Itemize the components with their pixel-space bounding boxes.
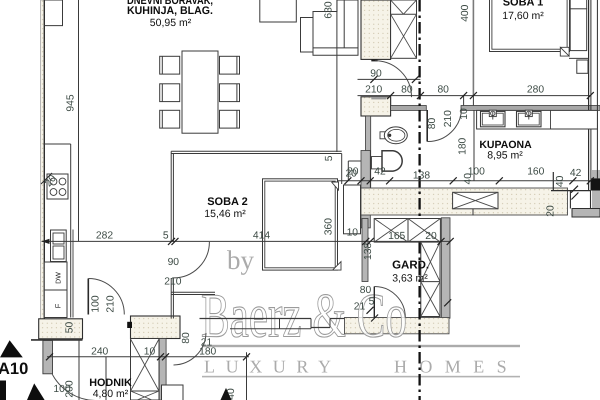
- svg-text:210: 210: [443, 110, 454, 127]
- svg-text:414: 414: [253, 230, 270, 241]
- svg-text:90: 90: [168, 257, 180, 268]
- svg-text:10: 10: [144, 347, 156, 358]
- svg-text:15,46 m²: 15,46 m²: [204, 208, 246, 220]
- svg-text:138: 138: [413, 171, 430, 182]
- svg-text:80: 80: [437, 85, 449, 96]
- svg-text:SOBA 2: SOBA 2: [207, 196, 248, 208]
- svg-text:5: 5: [369, 297, 375, 308]
- svg-text:LUXURY: LUXURY: [204, 357, 342, 377]
- svg-text:210: 210: [365, 85, 382, 96]
- svg-text:210: 210: [164, 276, 181, 287]
- svg-text:by: by: [227, 245, 255, 275]
- svg-text:8,95 m²: 8,95 m²: [487, 150, 523, 162]
- svg-text:50: 50: [65, 322, 76, 334]
- svg-text:945: 945: [66, 94, 77, 111]
- svg-text:3,63 m²: 3,63 m²: [392, 272, 428, 284]
- svg-text:HODNIK: HODNIK: [89, 377, 132, 389]
- svg-text:DW: DW: [56, 272, 63, 284]
- svg-text:F: F: [54, 303, 63, 308]
- svg-text:HOMES: HOMES: [394, 357, 519, 377]
- svg-text:40: 40: [555, 175, 566, 187]
- svg-text:80: 80: [181, 332, 192, 344]
- svg-text:282: 282: [96, 231, 113, 242]
- svg-text:10: 10: [459, 108, 470, 120]
- svg-text:42: 42: [374, 167, 386, 178]
- svg-text:630: 630: [324, 1, 335, 18]
- svg-text:20: 20: [425, 231, 437, 242]
- svg-text:40: 40: [463, 173, 474, 185]
- svg-text:180: 180: [199, 347, 216, 358]
- svg-text:4,80 m²: 4,80 m²: [93, 388, 129, 400]
- svg-text:180: 180: [458, 137, 469, 154]
- svg-text:Baerz & Co: Baerz & Co: [201, 281, 407, 351]
- svg-text:280: 280: [527, 85, 544, 96]
- svg-text:80: 80: [401, 85, 413, 96]
- svg-text:165: 165: [388, 231, 405, 242]
- svg-text:GARD.: GARD.: [392, 259, 429, 271]
- svg-text:160: 160: [527, 167, 544, 178]
- svg-text:SOBA 1: SOBA 1: [503, 0, 544, 9]
- svg-text:360: 360: [324, 218, 335, 235]
- svg-text:17,60 m²: 17,60 m²: [502, 10, 544, 22]
- svg-text:5: 5: [163, 230, 169, 241]
- svg-text:400: 400: [460, 4, 471, 21]
- svg-text:210: 210: [105, 295, 116, 312]
- svg-text:50,95 m²: 50,95 m²: [150, 17, 192, 29]
- svg-text:200: 200: [64, 380, 75, 397]
- svg-text:138: 138: [363, 243, 374, 260]
- svg-text:A10: A10: [0, 360, 28, 378]
- svg-text:21: 21: [354, 302, 366, 313]
- svg-text:10: 10: [347, 228, 359, 239]
- svg-text:80: 80: [427, 118, 438, 130]
- svg-text:5: 5: [324, 155, 335, 161]
- svg-text:80: 80: [360, 285, 372, 296]
- svg-text:20: 20: [546, 205, 557, 217]
- svg-text:100: 100: [90, 295, 101, 312]
- svg-text:KUHINJA, BLAG.: KUHINJA, BLAG.: [127, 5, 213, 17]
- svg-text:240: 240: [91, 347, 108, 358]
